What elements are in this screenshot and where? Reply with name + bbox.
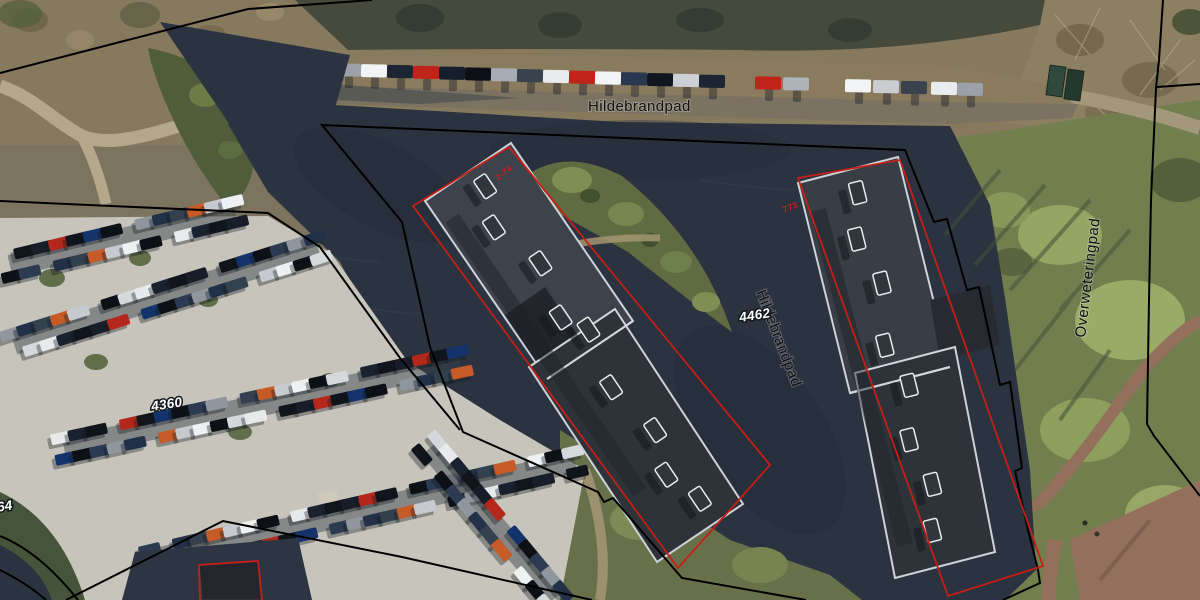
street-label-hildebrandpad-top: Hildebrandpad: [588, 98, 691, 115]
map-canvas[interactable]: Hildebrandpad Hildebrandpad Overwetering…: [0, 0, 1200, 600]
aerial-imagery: [0, 0, 1200, 600]
